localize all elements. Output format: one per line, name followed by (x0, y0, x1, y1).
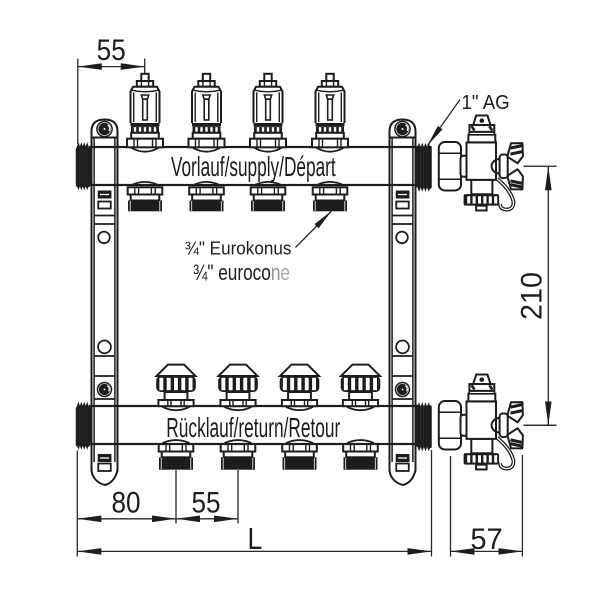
svg-text:1" AG: 1" AG (462, 91, 510, 114)
svg-text:55: 55 (97, 33, 126, 66)
svg-text:Vorlauf/supply/Départ: Vorlauf/supply/Départ (171, 151, 336, 182)
svg-text:¾" Eurokonus: ¾" Eurokonus (185, 238, 292, 259)
svg-text:80: 80 (111, 486, 140, 519)
svg-text:57: 57 (470, 523, 502, 556)
svg-text:Rücklauf/return/Retour: Rücklauf/return/Retour (166, 412, 340, 443)
svg-text:55: 55 (191, 486, 220, 519)
svg-text:¾" eurocone: ¾" eurocone (193, 261, 290, 286)
svg-text:L: L (247, 522, 262, 556)
svg-text:210: 210 (515, 272, 549, 320)
